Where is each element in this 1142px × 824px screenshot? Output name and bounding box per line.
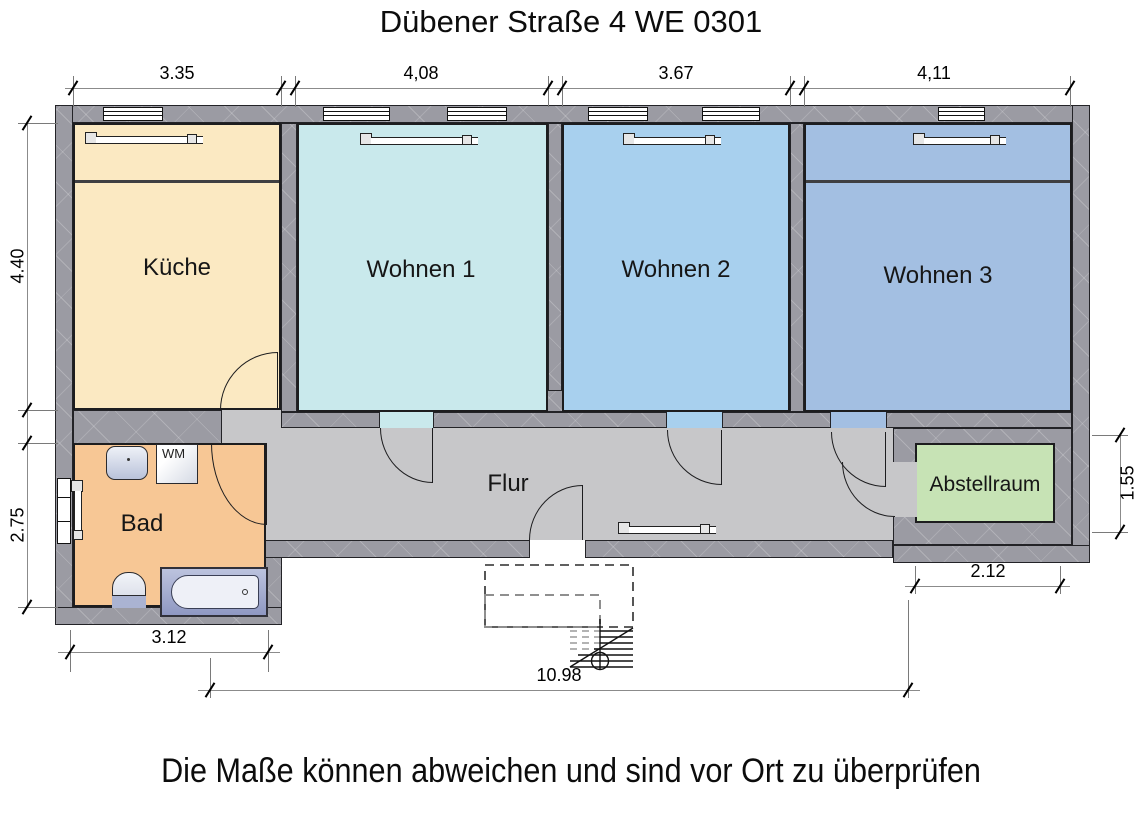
- ext-line: [1092, 435, 1128, 436]
- window-kueche: [103, 107, 163, 121]
- ext-line: [562, 76, 563, 107]
- flur-kueche-doorway: [222, 410, 281, 445]
- ext-line: [1070, 76, 1071, 107]
- label-wohnen2: Wohnen 2: [622, 256, 731, 284]
- bathtub-icon: [160, 567, 268, 617]
- beam-kueche: [75, 180, 279, 183]
- wall-flur-seg2: [433, 412, 667, 428]
- doorway-wohnen1: [380, 412, 433, 428]
- wall-bottom-seg2: [585, 540, 893, 558]
- window-wohnen1-a: [323, 107, 390, 121]
- disclaimer-note: Die Maße können abweichen und sind vor O…: [57, 752, 1085, 791]
- ext-line: [295, 76, 296, 107]
- radiator-icon-kueche: [85, 132, 205, 146]
- ext-line: [908, 600, 909, 698]
- wall-flur-seg1: [281, 412, 380, 428]
- toilet-base: [112, 595, 146, 608]
- radiator-icon-wohnen3: [913, 133, 1008, 147]
- window-wohnen2-b: [702, 107, 760, 121]
- dimline-bad: [58, 652, 280, 653]
- dim-total: 10.98: [536, 665, 581, 686]
- floorplan-canvas: Dübener Straße 4 WE 0301: [0, 0, 1142, 824]
- wall-bottom-seg1: [264, 540, 530, 558]
- dim-bad: 3.12: [151, 627, 186, 648]
- ext-line: [1060, 566, 1061, 594]
- ext-line: [790, 76, 791, 107]
- label-kueche: Küche: [143, 254, 211, 282]
- dim-top-1: 3.35: [159, 63, 194, 84]
- washing-machine-icon: WM: [156, 444, 198, 484]
- dim-top-2: 4,08: [403, 63, 438, 84]
- plan-title: Dübener Straße 4 WE 0301: [0, 4, 1142, 40]
- ext-line: [548, 76, 549, 107]
- washing-machine-label: WM: [157, 445, 197, 461]
- dim-top-4: 4,11: [917, 63, 951, 84]
- ext-line: [210, 658, 211, 698]
- doorway-wohnen3: [831, 412, 886, 428]
- label-wohnen3: Wohnen 3: [884, 262, 993, 290]
- dim-top-3: 3.67: [658, 63, 693, 84]
- window-wohnen3: [938, 107, 985, 121]
- ext-line: [73, 76, 74, 107]
- wall-wohnen1-wohnen2: [548, 123, 562, 412]
- dimline-abstell: [905, 586, 1070, 587]
- ext-line: [804, 76, 805, 107]
- label-flur: Flur: [487, 470, 528, 498]
- dim-left-2: 2.75: [8, 507, 29, 542]
- dim-abstell: 2.12: [970, 561, 1005, 582]
- dimline-total: [198, 690, 920, 691]
- wall-wohnen2-wohnen3: [790, 123, 804, 412]
- window-bad: [57, 478, 71, 544]
- window-wohnen2-a: [588, 107, 648, 121]
- wall-kueche-wohnen1: [281, 123, 297, 412]
- staircase-icon: [470, 557, 655, 682]
- radiator-icon-wohnen2: [623, 133, 723, 147]
- wall-right: [1072, 105, 1090, 563]
- dimline-top: [65, 88, 1070, 89]
- label-wohnen1: Wohnen 1: [367, 256, 476, 284]
- dim-left-1: 4.40: [8, 248, 29, 283]
- doorway-wohnen2: [667, 412, 722, 428]
- label-bad: Bad: [121, 510, 164, 538]
- doorway-entrance: [530, 540, 585, 558]
- ext-line: [915, 566, 916, 594]
- wall-left: [55, 105, 73, 625]
- radiator-icon-bad: [71, 480, 84, 542]
- dim-right-1: 1.55: [1118, 465, 1139, 500]
- wall-flur-seg4: [886, 412, 1072, 428]
- label-abstellraum: Abstellraum: [930, 473, 1041, 497]
- radiator-icon-wohnen1: [360, 133, 480, 147]
- window-wohnen1-b: [447, 107, 507, 121]
- ext-line: [1092, 532, 1128, 533]
- ext-line: [281, 76, 282, 107]
- radiator-icon-flur: [618, 522, 718, 536]
- beam-wohnen3: [806, 180, 1070, 183]
- sink-icon: [106, 446, 148, 480]
- wall-kueche-bad: [73, 410, 222, 445]
- wall-flur-seg3: [722, 412, 831, 428]
- wall-top: [55, 105, 1090, 123]
